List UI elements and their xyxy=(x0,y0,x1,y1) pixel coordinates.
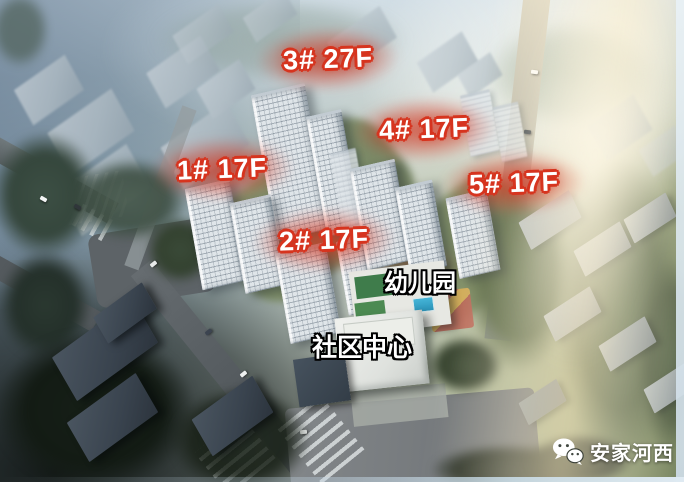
right-edge-strip xyxy=(676,0,684,482)
tree-cluster xyxy=(420,330,510,400)
car xyxy=(531,70,538,75)
label-building-3: 3# 27F xyxy=(283,44,374,74)
label-building-2: 2# 17F xyxy=(279,225,370,255)
wechat-icon xyxy=(552,437,584,466)
bottom-edge-strip xyxy=(0,477,684,482)
label-community-center: 社区中心 xyxy=(312,336,412,361)
label-building-1: 1# 17F xyxy=(177,154,268,184)
label-building-5: 5# 17F xyxy=(469,168,560,198)
watermark: 安家河西 xyxy=(552,437,674,466)
watermark-text: 安家河西 xyxy=(590,437,674,466)
label-kindergarten: 幼儿园 xyxy=(384,272,456,296)
tree-cluster xyxy=(0,0,55,75)
aerial-rendering: 3# 27F 4# 17F 1# 17F 5# 17F 2# 17F 幼儿园 社… xyxy=(0,0,684,482)
label-building-4: 4# 17F xyxy=(379,114,470,144)
car xyxy=(524,130,531,135)
